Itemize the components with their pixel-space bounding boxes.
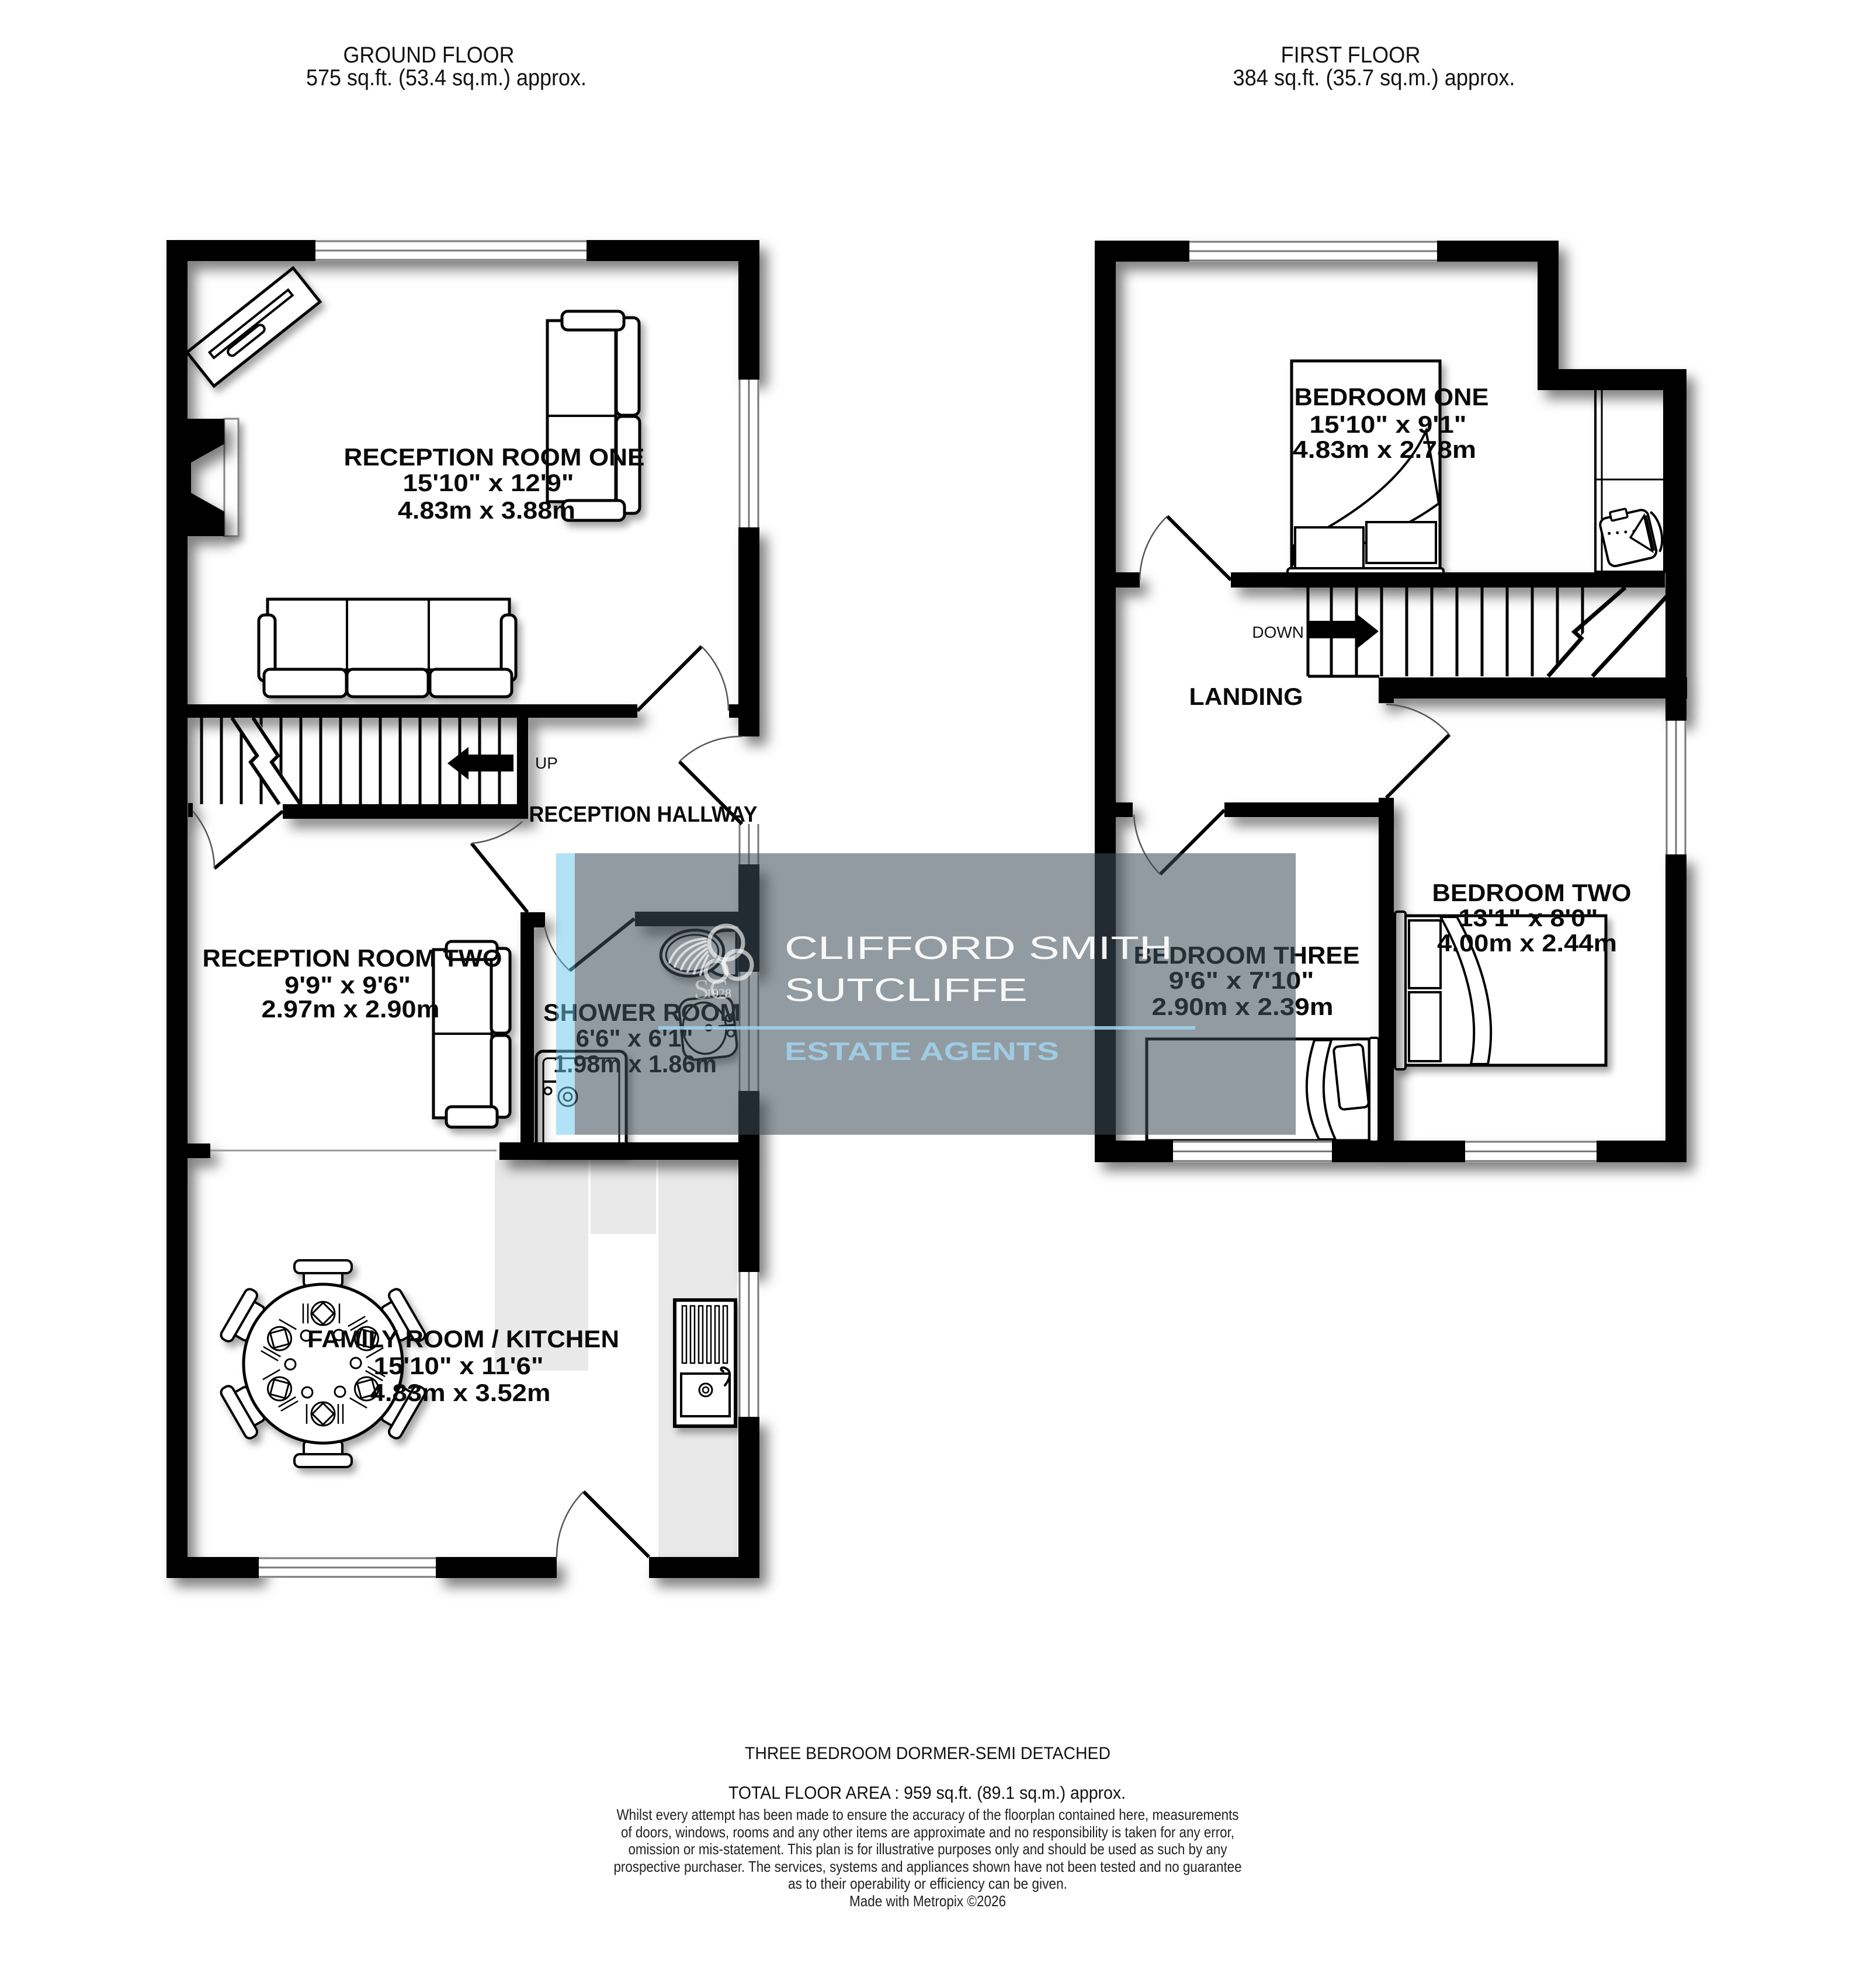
svg-text:Whilst every attempt has been: Whilst every attempt has been made to en… — [617, 1806, 1239, 1823]
svg-text:BEDROOM ONE: BEDROOM ONE — [1295, 383, 1489, 411]
svg-text:RECEPTION ROOM ONE: RECEPTION ROOM ONE — [344, 443, 645, 471]
svg-text:SUTCLIFFE: SUTCLIFFE — [785, 971, 1028, 1008]
svg-text:4.00m x 2.44m: 4.00m x 2.44m — [1437, 929, 1617, 957]
svg-text:GROUND FLOOR: GROUND FLOOR — [343, 43, 515, 68]
svg-text:384 sq.ft. (35.7 sq.m.) approx: 384 sq.ft. (35.7 sq.m.) approx. — [1233, 65, 1515, 91]
svg-text:15'10" x 12'9": 15'10" x 12'9" — [403, 469, 574, 496]
svg-text:4.83m x 3.88m: 4.83m x 3.88m — [398, 496, 575, 524]
svg-text:575 sq.ft. (53.4 sq.m.) approx: 575 sq.ft. (53.4 sq.m.) approx. — [306, 65, 587, 91]
svg-text:Made with Metropix ©2026: Made with Metropix ©2026 — [849, 1892, 1006, 1910]
svg-text:FIRST FLOOR: FIRST FLOOR — [1281, 43, 1421, 68]
svg-text:RECEPTION HALLWAY: RECEPTION HALLWAY — [529, 802, 758, 827]
svg-text:9'9" x 9'6": 9'9" x 9'6" — [284, 971, 411, 999]
svg-text:THREE BEDROOM DORMER-SEMI DETA: THREE BEDROOM DORMER-SEMI DETACHED — [745, 1744, 1111, 1763]
svg-text:of doors, windows, rooms and a: of doors, windows, rooms and any other i… — [621, 1823, 1234, 1841]
svg-text:13'1" x 8'0": 13'1" x 8'0" — [1459, 904, 1598, 932]
svg-text:prospective purchaser. The ser: prospective purchaser. The services, sys… — [614, 1858, 1242, 1875]
svg-text:15'10" x 11'6": 15'10" x 11'6" — [374, 1352, 544, 1379]
svg-text:BEDROOM TWO: BEDROOM TWO — [1432, 879, 1632, 906]
svg-text:4.83m x 2.78m: 4.83m x 2.78m — [1293, 436, 1476, 463]
svg-text:TOTAL FLOOR AREA : 959 sq.ft.: TOTAL FLOOR AREA : 959 sq.ft. (89.1 sq.m… — [728, 1782, 1126, 1803]
svg-text:LANDING: LANDING — [1189, 683, 1303, 710]
svg-text:1928: 1928 — [706, 986, 731, 1000]
svg-text:RECEPTION ROOM TWO: RECEPTION ROOM TWO — [203, 944, 502, 972]
svg-text:FAMILY ROOM / KITCHEN: FAMILY ROOM / KITCHEN — [307, 1325, 619, 1353]
svg-text:CLIFFORD SMITH: CLIFFORD SMITH — [785, 929, 1172, 966]
svg-text:as to their operability or eff: as to their operability or efficiency ca… — [788, 1875, 1067, 1892]
svg-text:omission or mis-statement. Thi: omission or mis-statement. This plan is … — [629, 1840, 1227, 1858]
svg-text:4.83m x 3.52m: 4.83m x 3.52m — [370, 1379, 551, 1406]
svg-text:DOWN: DOWN — [1252, 623, 1304, 641]
svg-text:2.97m x 2.90m: 2.97m x 2.90m — [262, 995, 440, 1023]
svg-text:15'10" x 9'1": 15'10" x 9'1" — [1310, 411, 1467, 438]
svg-text:ESTATE AGENTS: ESTATE AGENTS — [785, 1037, 1059, 1066]
svg-text:UP: UP — [535, 754, 558, 772]
